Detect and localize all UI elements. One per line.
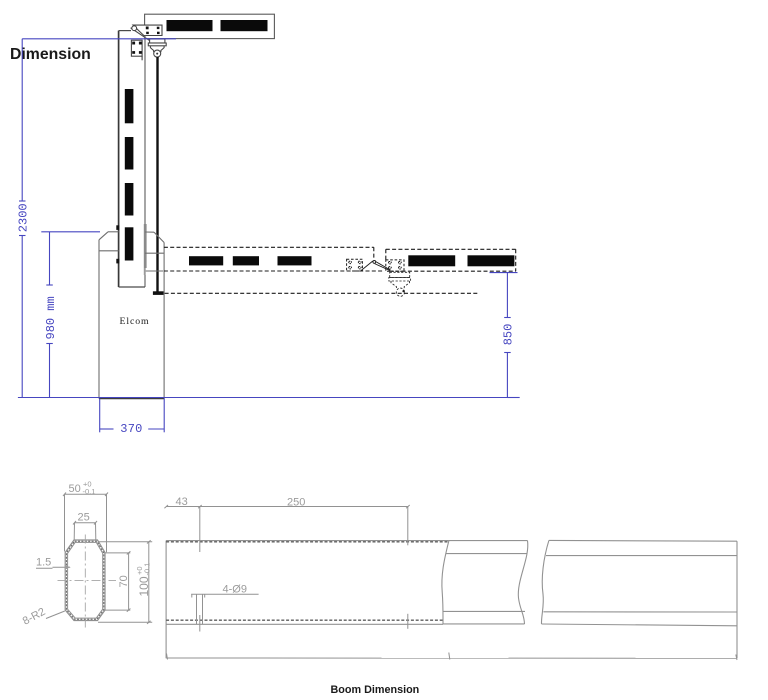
svg-text:25: 25 bbox=[78, 512, 90, 524]
svg-text:8-R2: 8-R2 bbox=[21, 606, 48, 628]
svg-text:250: 250 bbox=[287, 497, 305, 509]
svg-text:370: 370 bbox=[120, 422, 142, 436]
svg-text:Boom Dimension: Boom Dimension bbox=[331, 684, 420, 696]
svg-text:4-Ø9: 4-Ø9 bbox=[223, 584, 247, 596]
svg-text:43: 43 bbox=[176, 496, 188, 508]
svg-text:Elcom: Elcom bbox=[120, 316, 150, 327]
svg-text:1.5: 1.5 bbox=[36, 557, 51, 569]
svg-text:2300: 2300 bbox=[16, 203, 30, 232]
svg-text:850: 850 bbox=[501, 324, 515, 346]
svg-text:980 mm: 980 mm bbox=[44, 296, 58, 339]
svg-text:-0.1: -0.1 bbox=[142, 563, 151, 576]
svg-text:100: 100 bbox=[137, 576, 151, 596]
svg-text:-0.1: -0.1 bbox=[83, 487, 96, 496]
svg-text:50: 50 bbox=[69, 483, 81, 495]
svg-text:70: 70 bbox=[118, 575, 130, 587]
